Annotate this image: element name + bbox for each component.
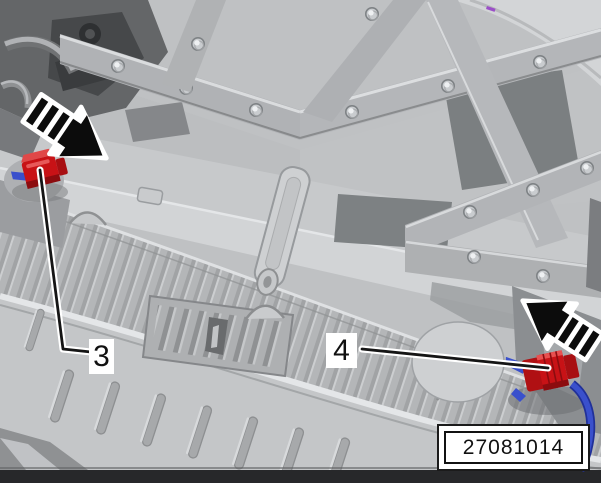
reference-number-box: 27081014 bbox=[437, 424, 590, 471]
body-structure bbox=[0, 0, 601, 483]
reference-number-frame: 27081014 bbox=[444, 431, 583, 464]
callout-3-number: 3 bbox=[93, 342, 110, 372]
technical-illustration: 3 4 27081014 bbox=[0, 0, 601, 483]
reference-number: 27081014 bbox=[463, 436, 564, 460]
figure-svg bbox=[0, 0, 601, 483]
callout-3-label: 3 bbox=[89, 339, 114, 374]
callout-4-label: 4 bbox=[326, 333, 357, 368]
callout-4-number: 4 bbox=[333, 336, 350, 366]
